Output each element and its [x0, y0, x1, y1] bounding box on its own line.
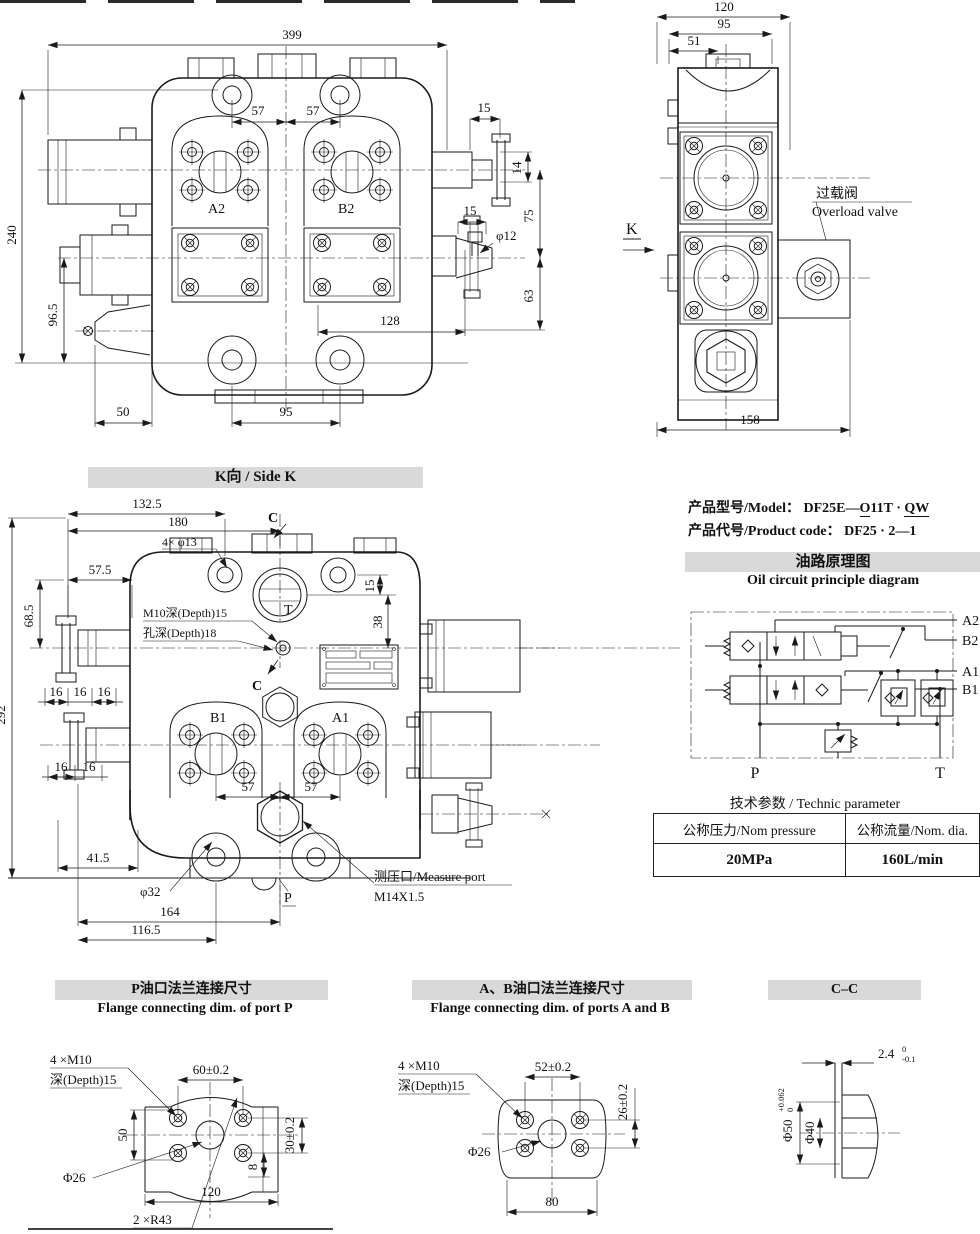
- port-label-t: T: [284, 603, 293, 618]
- dim-15: 15: [362, 580, 377, 593]
- dim-41-5: 41.5: [87, 850, 110, 865]
- dim-180: 180: [168, 514, 188, 529]
- dim-57-right: 57: [307, 103, 321, 118]
- flange-ab-drawing: 4 ×M10 深(Depth)15 52±0.2 26±0.2 Φ26 80: [390, 1030, 740, 1234]
- flange-p-dim-60: 60±0.2: [193, 1062, 229, 1077]
- dim-50: 50: [117, 404, 130, 419]
- dim-57-left: 57: [252, 103, 266, 118]
- dim-399: 399: [282, 27, 302, 42]
- flange-p-depth-note: 深(Depth)15: [50, 1072, 116, 1087]
- circuit-label-a1: A1: [962, 665, 979, 680]
- dim-75: 75: [521, 210, 536, 223]
- overload-valve-label-en: Overload valve: [812, 205, 898, 220]
- dim-68-5: 68.5: [21, 605, 36, 628]
- flange-p-title-bar: P油口法兰连接尺寸: [55, 980, 328, 1000]
- product-info: 产品型号/Model： DF25E—O11T · QW 产品代号/Product…: [688, 497, 929, 543]
- dim-63: 63: [521, 290, 536, 303]
- flange-ab-title-bar: A、B油口法兰连接尺寸: [412, 980, 692, 1000]
- flange-p-r43-note: 2 ×R43: [133, 1212, 172, 1227]
- name-plate: [323, 648, 396, 687]
- flange-ab-title-en: Flange connecting dim. of ports A and B: [390, 1001, 710, 1017]
- flange-ab-title-cn: A、B油口法兰连接尺寸: [479, 982, 624, 997]
- dim-phi32: φ32: [140, 884, 161, 899]
- measure-port-thread: M14X1.5: [374, 889, 424, 904]
- dim-120: 120: [714, 0, 734, 14]
- circuit-label-p: P: [751, 765, 760, 782]
- model-line: 产品型号/Model： DF25E—O11T · QW: [688, 497, 929, 520]
- circuit-label-a2: A2: [962, 614, 979, 629]
- flange-ab-outline: [482, 1078, 625, 1202]
- front-view-dimensions: 399 240 96.5 57 57 15 14 75 63 15: [4, 27, 545, 427]
- port-label-a1: A1: [332, 711, 349, 726]
- cc-dim-phi50-low: 0: [785, 1108, 795, 1112]
- dim-164: 164: [160, 904, 180, 919]
- code-label: 产品代号/Product code：: [688, 524, 841, 539]
- model-part3: 11T ·: [870, 501, 904, 516]
- flange-ab-dim-52: 52±0.2: [535, 1059, 571, 1074]
- k-view-dimensions: 292 132.5 180 4× φ13 C C 57.5 68.5 M10深(…: [0, 496, 512, 944]
- flange-p-dimensions: 4 ×M10 深(Depth)15 60±0.2 30±0.2 50 Φ26 1…: [50, 1052, 308, 1228]
- flange-p-bolt-note: 4 ×M10: [50, 1052, 92, 1067]
- dim-57-b: 57: [305, 779, 319, 794]
- code-line: 产品代号/Product code： DF25 · 2—1: [688, 520, 929, 543]
- tech-parameter-table: 公称压力/Nom pressure 公称流量/Nom. dia. 20MPa 1…: [653, 813, 980, 877]
- circuit-label-b2: B2: [962, 634, 978, 649]
- section-c-label-top: C: [268, 511, 278, 526]
- k-view-drawing: T: [0, 490, 690, 960]
- model-part2: O: [860, 501, 871, 517]
- view-arrow-k-label: K: [626, 221, 638, 238]
- flange-ab-dim-phi26: Φ26: [468, 1144, 491, 1159]
- section-cc-dimensions: 2.4 0 -0.1 Φ50 +0.062 0 Φ40: [776, 1044, 915, 1164]
- flange-p-title-cn: P油口法兰连接尺寸: [131, 982, 252, 997]
- flange-p-dim-8: 8: [245, 1164, 260, 1171]
- note-4xphi13: 4× φ13: [162, 535, 197, 549]
- schematic-lower-valve: [705, 671, 957, 704]
- port-label-b1: B1: [210, 711, 226, 726]
- dim-158: 158: [740, 412, 760, 427]
- dim-132-5: 132.5: [132, 496, 161, 511]
- overload-valve-label-cn: 过载阀: [816, 186, 858, 202]
- tech-col2-value: 160L/min: [845, 844, 979, 877]
- dim-57-a: 57: [242, 779, 256, 794]
- flange-p-dim-phi26: Φ26: [63, 1170, 86, 1185]
- oil-circuit-title-bar: 油路原理图: [685, 552, 980, 572]
- valve-body-side: [660, 44, 870, 430]
- section-cc-outline: [800, 1063, 900, 1178]
- dim-16-e: 16: [83, 759, 97, 774]
- schematic-check-valves: [760, 669, 953, 726]
- dim-16-b: 16: [74, 684, 88, 699]
- flange-p-dim-50: 50: [115, 1129, 130, 1142]
- section-cc-title: C–C: [831, 982, 858, 997]
- dim-128: 128: [380, 313, 400, 328]
- circuit-label-t: T: [935, 765, 945, 782]
- oil-circuit-diagram: P T A2 B2 A1 B1: [685, 596, 980, 792]
- cc-dim-phi50: Φ50: [780, 1119, 795, 1142]
- flange-ab-depth-note: 深(Depth)15: [398, 1078, 464, 1093]
- tech-table-title: 技术参数 / Technic parameter: [650, 793, 980, 813]
- tech-col2-header: 公称流量/Nom. dia.: [845, 814, 979, 844]
- circuit-label-b1: B1: [962, 683, 978, 698]
- dim-16-d: 16: [55, 759, 69, 774]
- dim-15-top: 15: [478, 100, 491, 115]
- k-left-fittings: [56, 616, 130, 779]
- k-right-fittings: [407, 620, 560, 847]
- model-part4: QW: [904, 501, 929, 517]
- flange-ab-bolt-note: 4 ×M10: [398, 1058, 440, 1073]
- side-view-drawing: 过载阀 Overload valve 120 95 51 158 K: [620, 0, 980, 465]
- port-label-p: P: [284, 891, 292, 906]
- valve-body-front: [38, 46, 525, 412]
- section-c-label-mid: C: [252, 679, 262, 694]
- cc-dim-24-up: 0: [902, 1044, 906, 1054]
- flange-p-dim-120: 120: [201, 1184, 221, 1199]
- cc-dim-24-low: -0.1: [902, 1054, 915, 1064]
- dim-38: 38: [370, 616, 385, 629]
- dim-292: 292: [0, 705, 8, 725]
- oil-circuit-title-cn: 油路原理图: [795, 554, 870, 570]
- note-hole-depth: 孔深(Depth)18: [143, 626, 216, 640]
- tech-col1-value: 20MPa: [654, 844, 846, 877]
- tech-col1-header: 公称压力/Nom pressure: [654, 814, 846, 844]
- flange-ab-dim-26: 26±0.2: [615, 1084, 630, 1120]
- flange-ab-dim-80: 80: [546, 1194, 559, 1209]
- flange-p-drawing: 4 ×M10 深(Depth)15 60±0.2 30±0.2 50 Φ26 1…: [30, 1030, 390, 1234]
- flange-ab-dimensions: 4 ×M10 深(Depth)15 52±0.2 26±0.2 Φ26 80: [398, 1058, 640, 1216]
- measure-port-label: 测压口/Measure port: [374, 869, 486, 884]
- k-view-title-bar: K向 / Side K: [88, 467, 423, 488]
- dim-95: 95: [280, 404, 293, 419]
- front-view-drawing: 399 240 96.5 57 57 15 14 75 63 15: [0, 0, 600, 465]
- port-label-b2: B2: [338, 202, 354, 217]
- port-label-a2: A2: [208, 202, 225, 217]
- code-value: DF25 · 2—1: [844, 524, 916, 539]
- model-part1: DF25E—: [804, 501, 860, 516]
- dim-96-5: 96.5: [45, 304, 60, 327]
- schematic-relief-valve: [825, 722, 857, 758]
- cc-dim-phi40: Φ40: [802, 1121, 817, 1144]
- flange-p-dim-30: 30±0.2: [282, 1117, 297, 1153]
- flange-p-title-en: Flange connecting dim. of port P: [30, 1001, 360, 1017]
- oil-circuit-title-en: Oil circuit principle diagram: [685, 573, 980, 589]
- dim-57-5: 57.5: [89, 562, 112, 577]
- section-cc-drawing: 2.4 0 -0.1 Φ50 +0.062 0 Φ40: [740, 1030, 980, 1234]
- k-view-title: K向 / Side K: [215, 469, 296, 485]
- cc-dim-24: 2.4: [878, 1046, 895, 1061]
- dim-16-c: 16: [98, 684, 112, 699]
- dim-116-5: 116.5: [132, 922, 161, 937]
- dim-phi12: φ12: [496, 228, 517, 243]
- schematic-upper-valve: [705, 620, 957, 660]
- note-m10-depth: M10深(Depth)15: [143, 606, 227, 620]
- dim-240: 240: [4, 225, 19, 245]
- dim-16-a: 16: [50, 684, 64, 699]
- dim-15-mid: 15: [464, 203, 477, 218]
- section-cc-title-bar: C–C: [768, 980, 921, 1000]
- model-label: 产品型号/Model：: [688, 501, 800, 516]
- dim-51: 51: [688, 33, 701, 48]
- dim-14: 14: [509, 161, 524, 175]
- dim-95: 95: [718, 16, 731, 31]
- hatching: [844, 1096, 877, 1176]
- drawing-sheet: 399 240 96.5 57 57 15 14 75 63 15: [0, 0, 980, 1234]
- overload-valve: 过载阀 Overload valve: [778, 186, 912, 318]
